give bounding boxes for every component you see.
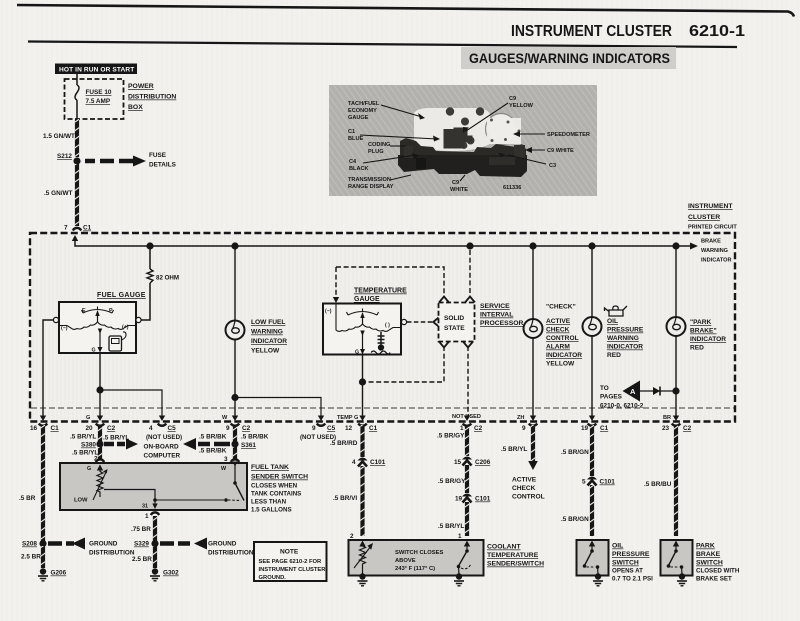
svg-text:SPEEDOMETER: SPEEDOMETER (547, 132, 590, 138)
svg-text:20: 20 (86, 425, 94, 432)
svg-text:BOX: BOX (128, 104, 143, 111)
svg-text:82 OHM: 82 OHM (156, 275, 179, 282)
svg-text:9: 9 (522, 425, 526, 432)
svg-text:1.5 GN/WT: 1.5 GN/WT (43, 133, 75, 140)
svg-text:2: 2 (350, 533, 354, 540)
svg-text:16: 16 (30, 425, 38, 432)
svg-text:LESS THAN: LESS THAN (251, 499, 287, 506)
svg-text:15: 15 (454, 459, 462, 466)
svg-text:PRESSURE: PRESSURE (612, 551, 650, 558)
svg-text:(+): (+) (122, 325, 129, 331)
svg-text:6210-1: 6210-1 (689, 23, 745, 40)
svg-text:WHITE: WHITE (450, 187, 468, 193)
svg-text:FUSE 10: FUSE 10 (86, 89, 112, 96)
svg-text:GROUND.: GROUND. (259, 575, 287, 581)
svg-text:4: 4 (149, 425, 153, 432)
svg-text:ACTIVE: ACTIVE (512, 477, 537, 484)
svg-text:RED: RED (690, 345, 704, 352)
svg-text:.5 BR/GN: .5 BR/GN (561, 516, 589, 523)
svg-text:7: 7 (64, 225, 68, 232)
svg-text:CHECK: CHECK (512, 485, 536, 492)
svg-text:23: 23 (662, 425, 670, 432)
svg-text:LOW FUEL: LOW FUEL (251, 319, 285, 326)
svg-text:TEMPERATURE: TEMPERATURE (487, 552, 539, 559)
svg-text:.5 BR/GN: .5 BR/GN (561, 449, 589, 456)
svg-text:SEE PAGE 6210-2 FOR: SEE PAGE 6210-2 FOR (259, 559, 323, 565)
svg-text:BLUE: BLUE (348, 136, 363, 142)
svg-text:CONTROL: CONTROL (546, 335, 579, 342)
svg-text:(NOT USED): (NOT USED) (146, 434, 182, 441)
svg-text:C2: C2 (107, 425, 116, 432)
svg-text:PLUG: PLUG (368, 149, 384, 155)
svg-text:C4: C4 (349, 159, 357, 165)
svg-text:"PARK: "PARK (690, 319, 712, 326)
svg-text:611336: 611336 (503, 185, 521, 191)
svg-text:YELLOW: YELLOW (509, 103, 534, 109)
svg-text:.5 BR/YL: .5 BR/YL (438, 523, 464, 530)
svg-text:.5 BR/RD: .5 BR/RD (330, 440, 358, 447)
svg-text:INSTRUMENT CLUSTER: INSTRUMENT CLUSTER (511, 23, 672, 40)
svg-text:DISTRIBUTION: DISTRIBUTION (128, 94, 176, 101)
svg-text:2.5 BR: 2.5 BR (21, 554, 41, 561)
svg-text:C1: C1 (348, 129, 355, 135)
svg-text:C5: C5 (327, 425, 336, 432)
svg-text:COOLANT: COOLANT (487, 544, 521, 551)
svg-text:.5 BR/BU: .5 BR/BU (644, 481, 672, 488)
svg-text:SOLID: SOLID (444, 315, 464, 322)
svg-text:SENDER/SWITCH: SENDER/SWITCH (487, 561, 544, 568)
svg-text:C2: C2 (683, 425, 692, 432)
svg-text:4: 4 (352, 459, 356, 466)
svg-text:.5 BR/VI: .5 BR/VI (333, 495, 357, 502)
svg-text:WARNING: WARNING (701, 248, 728, 254)
svg-text:SWITCH CLOSES: SWITCH CLOSES (395, 550, 443, 556)
svg-text:C9: C9 (452, 180, 459, 186)
svg-text:SWITCH: SWITCH (612, 560, 639, 567)
svg-text:.5 BR/YL: .5 BR/YL (103, 435, 129, 442)
svg-text:A: A (630, 387, 636, 396)
svg-text:C9 WHITE: C9 WHITE (547, 148, 574, 154)
svg-text:DISTRIBUTION: DISTRIBUTION (89, 550, 135, 557)
svg-text:INDICATOR: INDICATOR (546, 352, 582, 359)
svg-text:FUSE: FUSE (149, 152, 167, 159)
svg-text:BRAKE: BRAKE (701, 239, 721, 245)
svg-text:P: P (109, 308, 113, 314)
svg-text:DISTRIBUTION: DISTRIBUTION (208, 550, 254, 557)
svg-text:6210-0, 6210-2: 6210-0, 6210-2 (600, 403, 644, 410)
svg-text:G206: G206 (51, 570, 67, 577)
svg-text:INSTRUMENT: INSTRUMENT (688, 203, 733, 210)
svg-text:INSTRUMENT CLUSTER: INSTRUMENT CLUSTER (259, 567, 327, 573)
svg-text:COMPUTER: COMPUTER (144, 453, 181, 460)
svg-text:SERVICE: SERVICE (480, 303, 510, 310)
svg-text:C101: C101 (600, 479, 616, 486)
svg-text:INDICATOR: INDICATOR (690, 336, 726, 343)
svg-text:S329: S329 (134, 541, 149, 548)
svg-text:G: G (87, 466, 91, 472)
svg-text:1: 1 (460, 425, 464, 432)
svg-text:INTERVAL: INTERVAL (480, 312, 513, 319)
svg-text:TANK CONTAINS: TANK CONTAINS (251, 491, 301, 498)
svg-text:G: G (86, 415, 90, 421)
svg-text:DETAILS: DETAILS (149, 162, 177, 169)
svg-text:(−): (−) (325, 309, 332, 315)
svg-text:1.5 GALLONS: 1.5 GALLONS (251, 507, 292, 514)
svg-text:9: 9 (226, 425, 230, 432)
svg-text:S361: S361 (241, 442, 256, 449)
svg-text:TO: TO (600, 385, 609, 392)
svg-text:7.5 AMP: 7.5 AMP (86, 98, 111, 105)
svg-text:INDICATOR: INDICATOR (701, 258, 732, 264)
svg-text:ECONOMY: ECONOMY (348, 108, 377, 114)
svg-text:31: 31 (142, 504, 148, 510)
svg-text:S212: S212 (57, 153, 72, 160)
svg-text:TRANSMISSION: TRANSMISSION (348, 177, 391, 183)
svg-text:NOT USED: NOT USED (452, 414, 481, 420)
svg-text:INDICATOR: INDICATOR (607, 344, 643, 351)
svg-text:C3: C3 (549, 163, 556, 169)
svg-text:WARNING: WARNING (607, 335, 639, 342)
svg-text:STATE: STATE (444, 325, 465, 332)
svg-text:BRAKE": BRAKE" (690, 328, 717, 335)
svg-text:YELLOW: YELLOW (546, 361, 575, 368)
svg-text:.5 BR/GY: .5 BR/GY (437, 433, 465, 440)
svg-text:FUEL GAUGE: FUEL GAUGE (97, 292, 146, 299)
svg-text:.5 BR/YL: .5 BR/YL (501, 446, 527, 453)
svg-text:.5 GN/WT: .5 GN/WT (44, 190, 72, 197)
svg-text:WARNING: WARNING (251, 329, 283, 336)
svg-text:PAGES: PAGES (600, 394, 623, 401)
svg-text:ACTIVE: ACTIVE (546, 318, 571, 325)
svg-text:(−): (−) (61, 326, 68, 332)
svg-text:"CHECK": "CHECK" (546, 304, 576, 311)
svg-text:CLUSTER: CLUSTER (688, 214, 720, 221)
svg-text:RED: RED (607, 352, 621, 359)
svg-text:OIL: OIL (612, 543, 623, 550)
svg-text:PRESSURE: PRESSURE (607, 327, 644, 334)
svg-text:ALARM: ALARM (546, 344, 570, 351)
svg-text:RANGE DISPLAY: RANGE DISPLAY (348, 184, 394, 190)
svg-text:OPENS AT: OPENS AT (612, 568, 643, 575)
svg-text:PRINTED CIRCUIT: PRINTED CIRCUIT (688, 225, 737, 231)
svg-text:NOTE: NOTE (280, 549, 299, 556)
svg-text:S380: S380 (81, 442, 96, 449)
svg-text:9: 9 (312, 425, 316, 432)
svg-text:C206: C206 (475, 459, 491, 466)
svg-text:INDICATOR: INDICATOR (251, 338, 287, 345)
svg-text:BRAKE: BRAKE (696, 551, 721, 558)
svg-text:BRAKE SET: BRAKE SET (696, 576, 732, 583)
svg-text:G: G (355, 350, 359, 356)
svg-text:GAUGE: GAUGE (354, 296, 380, 303)
svg-text:C9: C9 (509, 96, 516, 102)
svg-text:GAUGES/WARNING INDICATORS: GAUGES/WARNING INDICATORS (469, 50, 670, 66)
svg-text:.5 BR/BK: .5 BR/BK (241, 434, 269, 441)
svg-text:GROUND: GROUND (208, 541, 237, 548)
svg-text:5: 5 (582, 479, 586, 486)
svg-text:C101: C101 (370, 459, 386, 466)
svg-text:G: G (92, 348, 96, 354)
svg-text:243° F (117° C): 243° F (117° C) (395, 566, 435, 572)
svg-text:.5 BR/BK: .5 BR/BK (199, 434, 227, 441)
svg-text:W: W (222, 415, 228, 421)
svg-text:CHECK: CHECK (546, 327, 570, 334)
svg-text:HOT IN RUN OR START: HOT IN RUN OR START (59, 67, 134, 74)
svg-text:C1: C1 (51, 425, 60, 432)
svg-text:TACH/FUEL: TACH/FUEL (348, 101, 380, 107)
svg-text:ON-BOARD: ON-BOARD (144, 444, 180, 451)
svg-text:CONTROL: CONTROL (512, 494, 545, 501)
svg-text:G302: G302 (163, 570, 179, 577)
svg-text:S208: S208 (22, 541, 37, 548)
svg-text:POWER: POWER (128, 83, 154, 90)
svg-text:YELLOW: YELLOW (251, 348, 280, 355)
svg-text:TEMP G: TEMP G (337, 415, 358, 421)
svg-text:SWITCH: SWITCH (696, 560, 723, 567)
svg-text:C5: C5 (168, 425, 177, 432)
svg-text:3: 3 (224, 456, 228, 463)
svg-text:.5 BR/YL: .5 BR/YL (70, 434, 96, 441)
svg-text:( ): ( ) (385, 323, 390, 329)
svg-text:.5 BR: .5 BR (19, 495, 36, 502)
svg-text:2.5 BR: 2.5 BR (132, 556, 152, 563)
svg-text:BLACK: BLACK (349, 166, 369, 172)
svg-text:CLOSES WHEN: CLOSES WHEN (251, 483, 298, 490)
svg-text:BR: BR (663, 415, 671, 421)
svg-text:12: 12 (345, 425, 353, 432)
svg-text:OIL: OIL (607, 318, 618, 325)
svg-text:C2: C2 (474, 425, 483, 432)
svg-text:C1: C1 (83, 225, 92, 232)
svg-text:LOW: LOW (74, 498, 88, 504)
svg-text:ZH: ZH (517, 415, 524, 421)
svg-text:C101: C101 (475, 496, 491, 503)
svg-text:CLOSED WITH: CLOSED WITH (696, 568, 740, 575)
svg-text:FUEL TANK: FUEL TANK (251, 464, 289, 471)
svg-text:GAUGE: GAUGE (348, 115, 369, 121)
svg-text:.75 BR: .75 BR (131, 526, 151, 533)
svg-text:1: 1 (458, 533, 462, 540)
svg-text:C1: C1 (600, 425, 609, 432)
svg-text:SENDER SWITCH: SENDER SWITCH (251, 474, 308, 481)
svg-text:ABOVE: ABOVE (395, 558, 416, 564)
svg-text:PROCESSOR: PROCESSOR (480, 320, 524, 327)
svg-text:GROUND: GROUND (89, 541, 118, 548)
svg-text:0.7 TO 2.1 PSI: 0.7 TO 2.1 PSI (612, 576, 653, 583)
svg-text:19: 19 (581, 425, 589, 432)
svg-text:CODING: CODING (368, 142, 390, 148)
svg-text:.5 BR/BK: .5 BR/BK (199, 448, 227, 455)
svg-text:19: 19 (455, 496, 463, 503)
svg-text:C1: C1 (369, 425, 378, 432)
svg-text:.5 BR/GY: .5 BR/GY (438, 478, 466, 485)
svg-text:E: E (82, 308, 86, 314)
svg-text:C2: C2 (242, 425, 251, 432)
svg-text:TEMPERATURE: TEMPERATURE (354, 288, 407, 295)
svg-text:PARK: PARK (696, 543, 715, 550)
svg-text:1: 1 (145, 513, 149, 520)
